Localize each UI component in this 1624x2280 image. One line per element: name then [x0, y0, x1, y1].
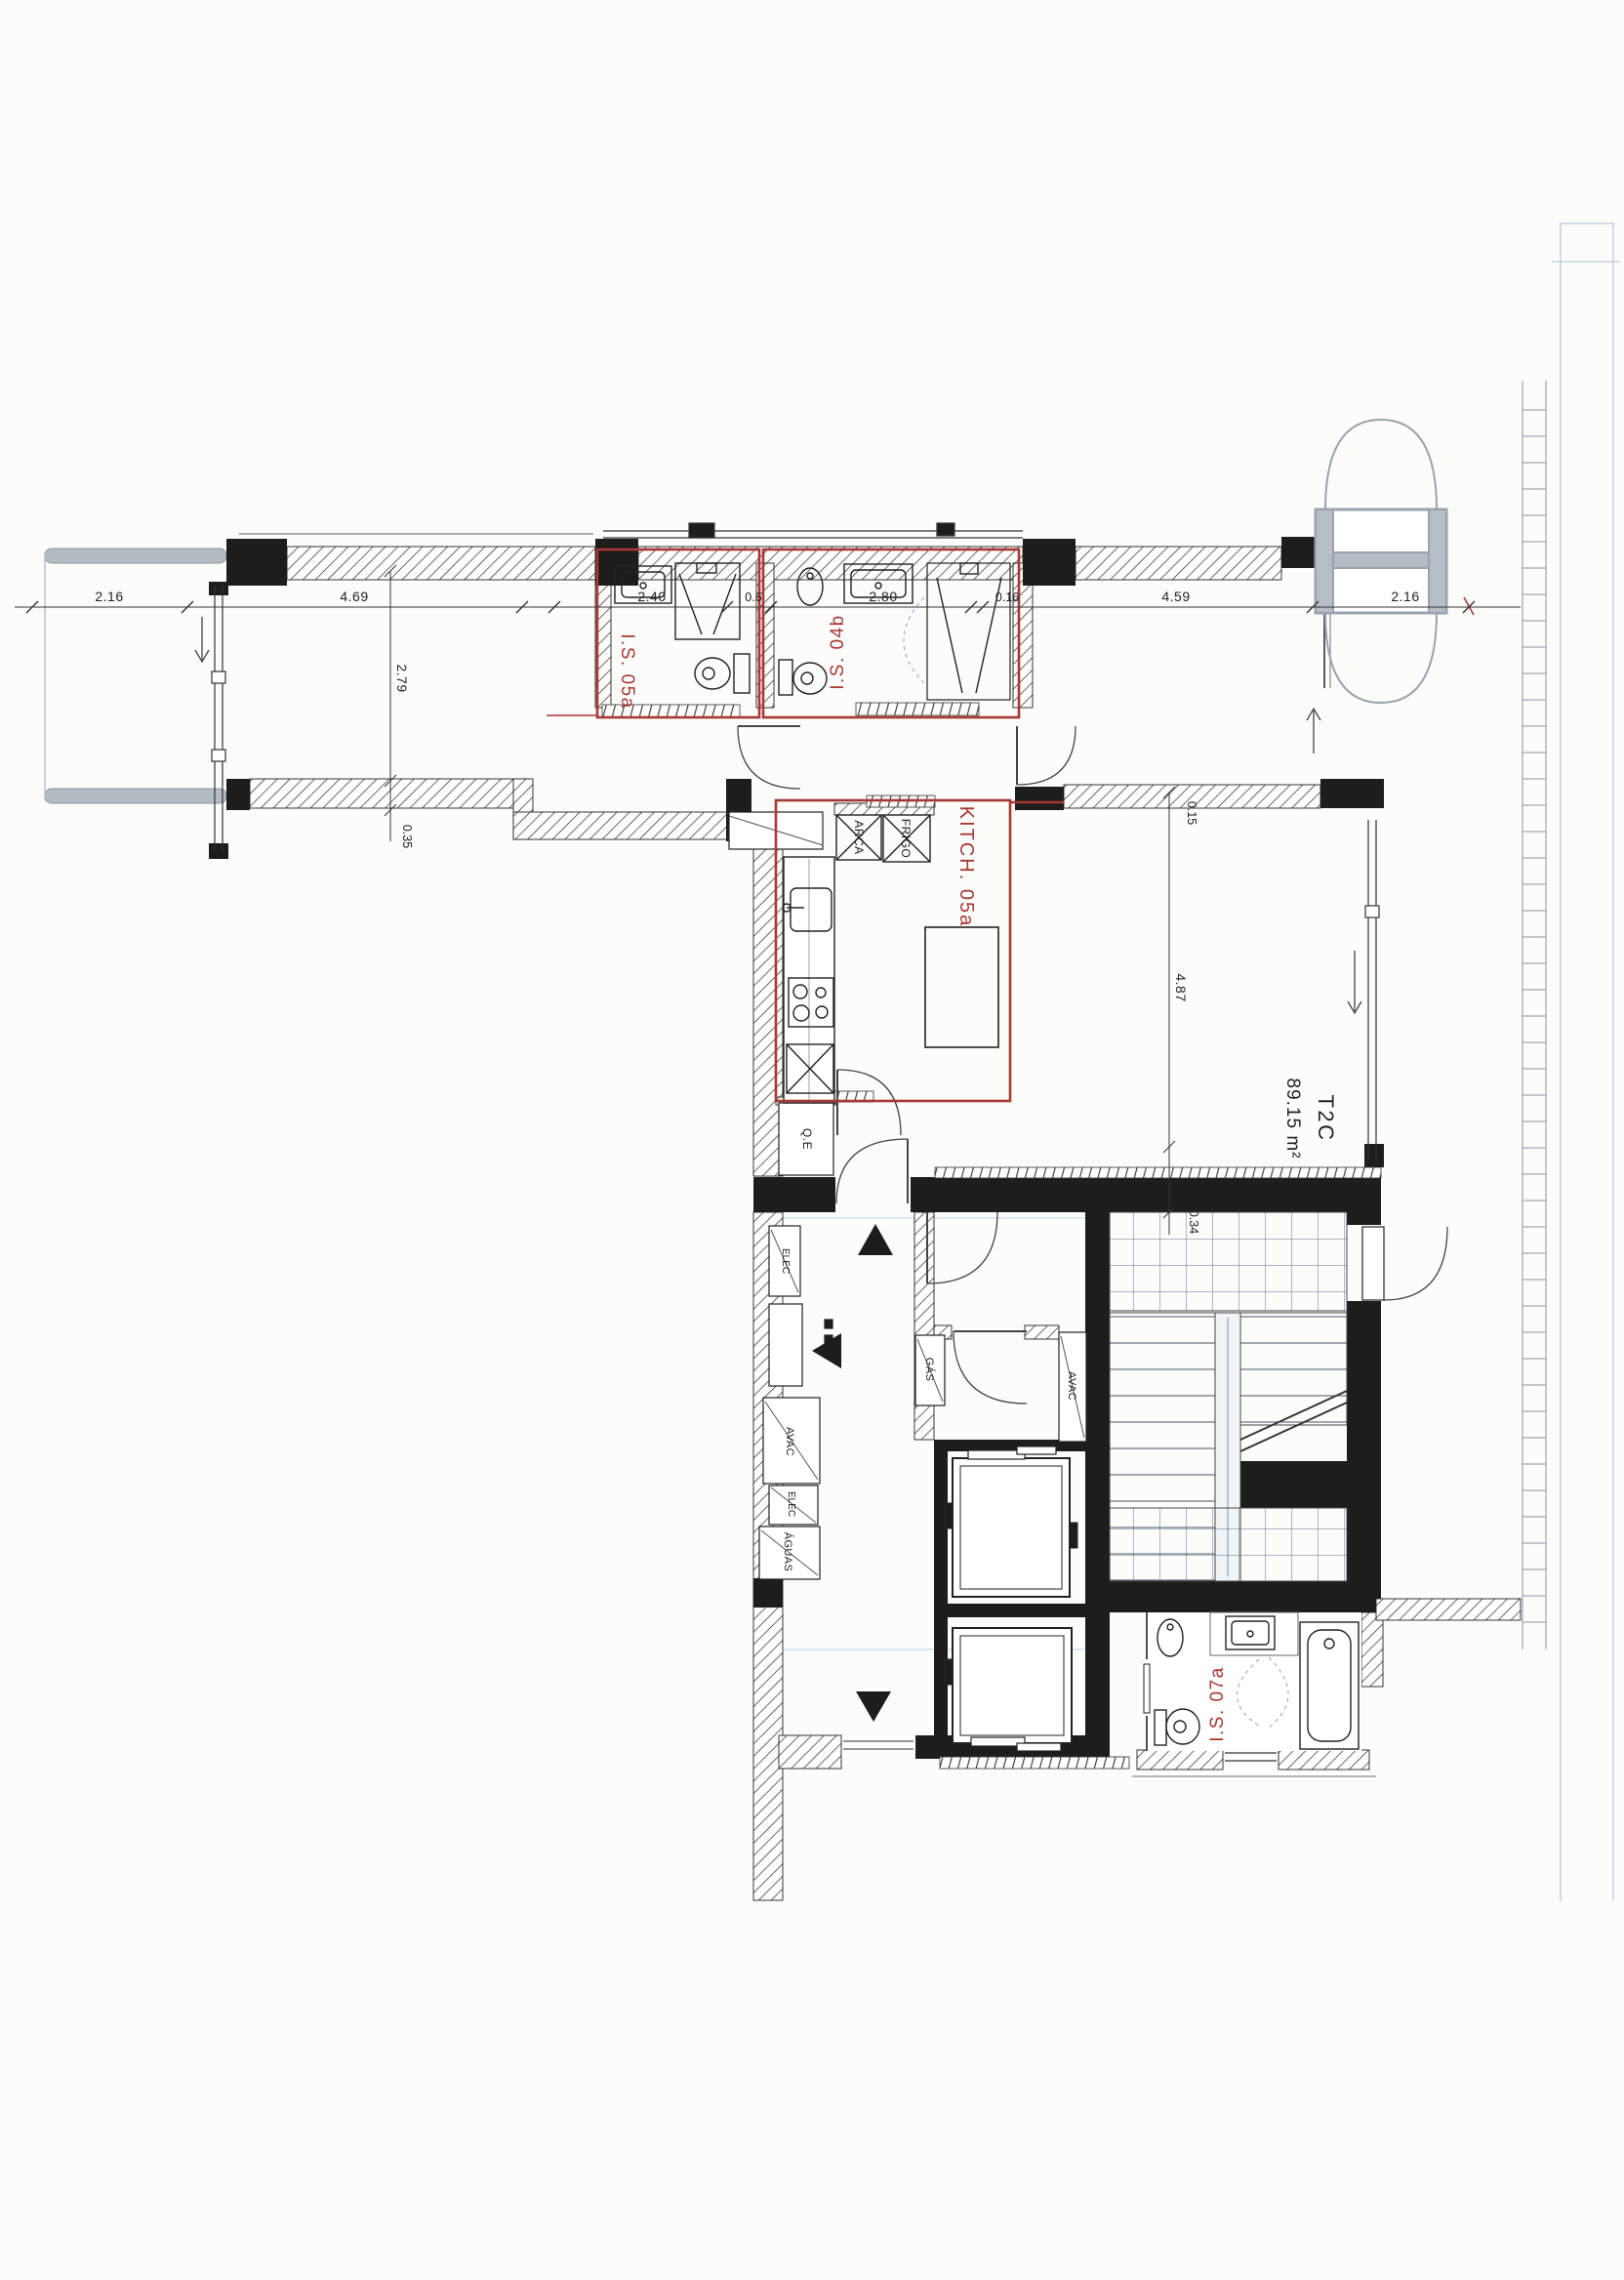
dim-living-width: 4.59: [1161, 589, 1190, 604]
floor-plan-drawing: 2.16 4.69 2.40 0.6 2.80 0.16 4.59 2.16 2…: [0, 0, 1624, 2280]
dim-wall-top: 0.15: [1185, 801, 1198, 825]
label-elec-riser: ELEC: [786, 1491, 796, 1517]
dim-landing-depth: 0.34: [1187, 1210, 1200, 1234]
apartment-code: T2C: [1314, 1094, 1338, 1142]
label-avac-core: AVAC: [1066, 1371, 1077, 1401]
label-frigo: FRIGO: [899, 819, 913, 859]
balcony-rails: [45, 549, 226, 803]
label-arca: ARCA: [852, 820, 866, 854]
elevator-2: [945, 1628, 1072, 1751]
dim-room-left-width: 4.69: [340, 589, 368, 604]
dim-room-left-depth: 2.79: [394, 664, 410, 692]
label-avac-riser: AVAC: [784, 1427, 795, 1456]
room-label-is07a: I.S. 07a: [1207, 1666, 1228, 1742]
bathroom-04b-fixtures: [779, 563, 1010, 700]
label-elec-hall: ELEC: [780, 1248, 791, 1274]
dim-wall-right: 0.16: [995, 590, 1019, 604]
scanned-floor-plan-page: 2.16 4.69 2.40 0.6 2.80 0.16 4.59 2.16 2…: [0, 0, 1624, 2280]
room-label-is05a: I.S. 05a: [617, 633, 637, 710]
label-qe: Q.E: [800, 1128, 814, 1150]
apartment-area: 89.15 m²: [1282, 1079, 1303, 1160]
room-label-is04b: I.S. 04b: [828, 614, 848, 690]
dim-step-depth: 0.35: [400, 825, 414, 848]
dim-living-depth: 4.87: [1173, 973, 1189, 1001]
dim-bath1-width: 2.40: [637, 589, 666, 604]
common-double-door: [1316, 420, 1446, 703]
dim-shaft-width: 0.6: [745, 590, 761, 604]
dim-bath2-width: 2.80: [869, 589, 897, 604]
label-aguas: ÁGUAS: [782, 1532, 794, 1572]
dim-terrace-left: 2.16: [95, 589, 123, 604]
bathroom-07a-fixtures: [1144, 1612, 1361, 1751]
dim-terrace-right: 2.16: [1391, 589, 1419, 604]
facade-ladder-strip: [1522, 381, 1546, 1649]
room-label-kitchen: KITCH. 05a: [955, 806, 977, 927]
apartment-title: T2C 89.15 m²: [1282, 1079, 1338, 1160]
stairwell: [1110, 1212, 1347, 1581]
label-gas: GÁS: [923, 1358, 936, 1381]
elevator-1: [945, 1446, 1077, 1597]
